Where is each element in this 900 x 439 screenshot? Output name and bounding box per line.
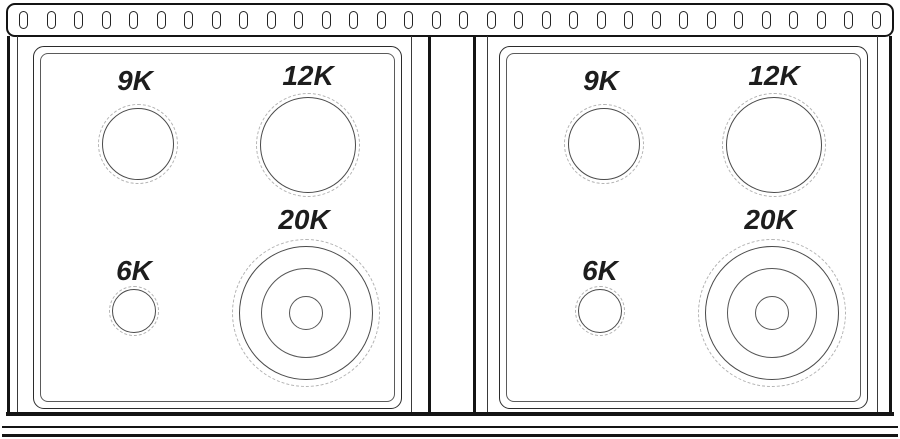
vent-slot <box>74 11 83 29</box>
vent-slot <box>872 11 881 29</box>
vent-slot <box>542 11 551 29</box>
vent-slot <box>129 11 138 29</box>
center-divider-right-wall <box>473 36 476 413</box>
vent-slot <box>734 11 743 29</box>
burner-12k <box>256 93 360 197</box>
burner-12k-ring <box>260 97 356 193</box>
vent-slot <box>102 11 111 29</box>
vent-slot <box>47 11 56 29</box>
kick-band-lower <box>2 428 898 437</box>
burner-label-6k: 6K <box>116 257 152 285</box>
vent-slot <box>377 11 386 29</box>
vent-slot <box>514 11 523 29</box>
vent-slot <box>487 11 496 29</box>
vent-slot <box>789 11 798 29</box>
burner-9k <box>564 104 644 184</box>
vent-slot <box>679 11 688 29</box>
vent-slot <box>404 11 413 29</box>
vent-slot <box>294 11 303 29</box>
vent-slot <box>597 11 606 29</box>
body-right-wall <box>889 36 892 413</box>
kick-band-upper <box>2 416 898 428</box>
burner-20k-center-ring <box>755 296 789 330</box>
vent-slot <box>239 11 248 29</box>
burner-label-9k: 9K <box>117 67 153 95</box>
vent-slot <box>432 11 441 29</box>
burner-6k-ring <box>578 289 622 333</box>
vent-strip <box>6 3 894 37</box>
burner-9k-ring <box>102 108 174 180</box>
burner-label-6k: 6K <box>582 257 618 285</box>
vent-slot <box>157 11 166 29</box>
burner-label-20k: 20K <box>744 206 795 234</box>
burner-label-12k: 12K <box>282 62 333 90</box>
vent-slot <box>569 11 578 29</box>
vent-slot <box>184 11 193 29</box>
burner-label-9k: 9K <box>583 67 619 95</box>
burner-12k-ring <box>726 97 822 193</box>
cooktop-panel-left: 9K 12K 6K 20K <box>33 46 402 409</box>
burner-label-12k: 12K <box>748 62 799 90</box>
vent-slot <box>267 11 276 29</box>
cooktop-panel-right: 9K 12K 6K 20K <box>499 46 868 409</box>
burner-20k-center-ring <box>289 296 323 330</box>
burner-6k <box>575 286 625 336</box>
right-section-frame-line-left <box>487 36 488 413</box>
burner-6k-ring <box>112 289 156 333</box>
burner-9k <box>98 104 178 184</box>
vent-slot <box>844 11 853 29</box>
vent-slot <box>707 11 716 29</box>
burner-12k <box>722 93 826 197</box>
vent-slot <box>322 11 331 29</box>
vent-slot <box>459 11 468 29</box>
burner-6k <box>109 286 159 336</box>
burner-20k <box>232 239 380 387</box>
center-divider-left-wall <box>428 36 431 413</box>
burner-label-20k: 20K <box>278 206 329 234</box>
vent-slot <box>349 11 358 29</box>
vent-slot <box>817 11 826 29</box>
burner-9k-ring <box>568 108 640 180</box>
left-section-frame-line-right <box>411 36 412 413</box>
vent-slot <box>624 11 633 29</box>
vent-slot <box>652 11 661 29</box>
vent-slot <box>762 11 771 29</box>
vent-slot <box>212 11 221 29</box>
burner-20k <box>698 239 846 387</box>
vent-slot <box>19 11 28 29</box>
body-left-wall <box>7 36 10 413</box>
range-cooktop-diagram: 9K 12K 6K 20K 9K 12K 6K <box>0 0 900 439</box>
left-section-frame-line <box>17 36 18 413</box>
right-section-frame-line <box>877 36 878 413</box>
